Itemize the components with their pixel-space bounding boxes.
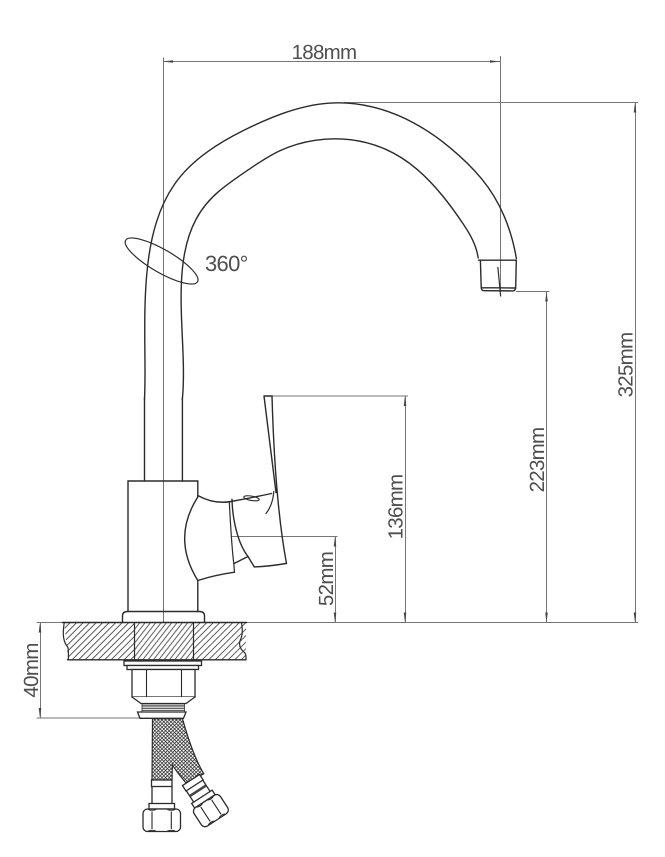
svg-text:360°: 360° [205, 251, 248, 276]
svg-text:136mm: 136mm [385, 475, 408, 540]
svg-text:325mm: 325mm [615, 333, 638, 398]
svg-text:52mm: 52mm [315, 552, 338, 606]
svg-text:188mm: 188mm [292, 41, 357, 64]
svg-text:223mm: 223mm [526, 428, 549, 493]
svg-text:40mm: 40mm [20, 643, 43, 697]
